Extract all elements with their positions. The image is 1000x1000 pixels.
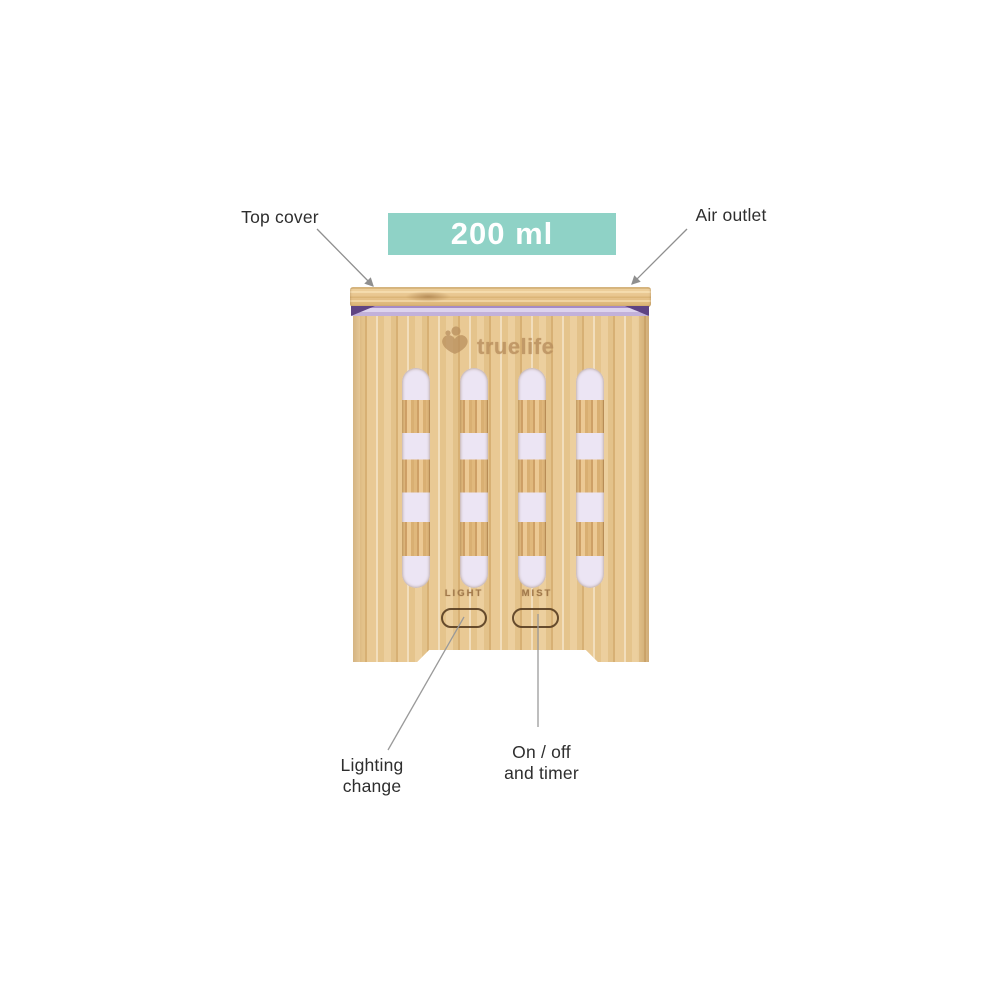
label-on-off-timer: On / off and timer [494, 742, 589, 784]
light-button [441, 608, 487, 628]
brand-name: truelife [477, 334, 554, 360]
brand-logo: truelife [439, 322, 569, 364]
leader-top-cover [317, 229, 373, 286]
light-slot-3 [518, 368, 546, 588]
light-slot-1 [402, 368, 430, 588]
mist-button [512, 608, 559, 628]
label-on-off-timer-line1: On / off [512, 742, 571, 762]
led-strip-left-edge [351, 306, 375, 316]
label-top-cover: Top cover [240, 207, 320, 228]
wood-knot [405, 291, 451, 302]
device-top-cover [350, 287, 651, 307]
label-lighting-change-line1: Lighting [341, 755, 404, 775]
leader-air-outlet [632, 229, 687, 284]
truelife-heart-figure-icon [439, 324, 471, 356]
label-air-outlet: Air outlet [691, 205, 771, 226]
mist-button-label: MIST [507, 588, 567, 599]
label-lighting-change: Lighting change [327, 755, 417, 797]
led-strip [352, 306, 648, 316]
device-body: truelife LIGHT MIST [353, 316, 649, 662]
capacity-badge: 200 ml [388, 213, 616, 255]
product-diagram: 200 ml Top cover Air outlet truelife LIG… [0, 0, 1000, 1000]
light-button-label: LIGHT [434, 588, 494, 599]
label-on-off-timer-line2: and timer [504, 763, 579, 783]
label-lighting-change-line2: change [343, 776, 402, 796]
led-strip-right-edge [625, 306, 649, 316]
light-slot-4 [576, 368, 604, 588]
light-slot-2 [460, 368, 488, 588]
